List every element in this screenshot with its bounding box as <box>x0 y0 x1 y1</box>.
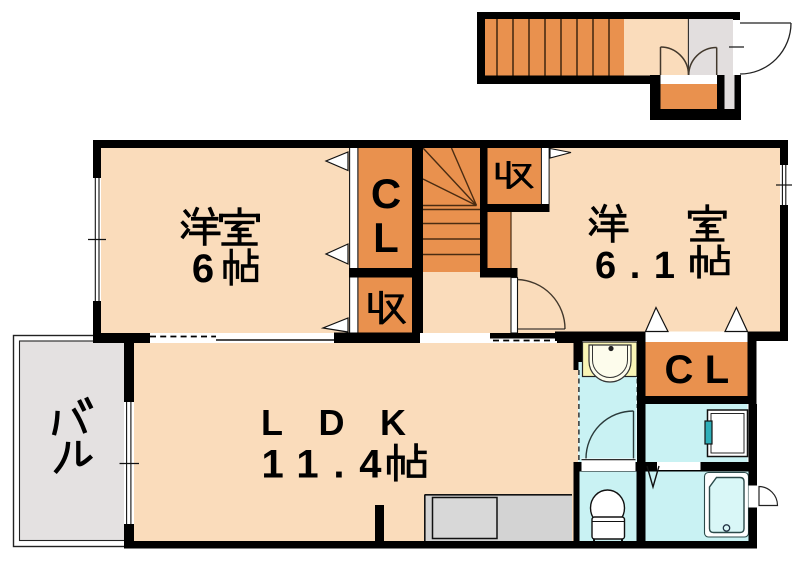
svg-text:LDK: LDK <box>261 402 406 443</box>
svg-text:L: L <box>373 214 399 261</box>
svg-text:L: L <box>705 348 729 392</box>
svg-text:C: C <box>371 170 401 217</box>
svg-text:6: 6 <box>192 247 214 291</box>
svg-text:6.1: 6.1 <box>595 245 675 287</box>
svg-text:C: C <box>665 348 694 392</box>
